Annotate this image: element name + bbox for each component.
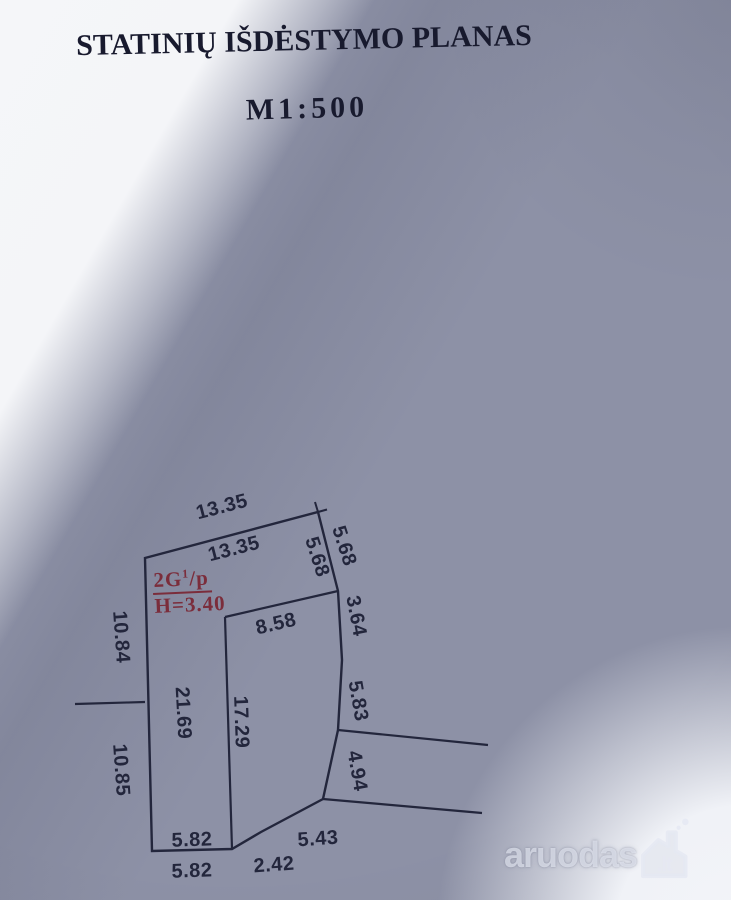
building-height: H=3.40 xyxy=(153,592,226,618)
dim-bottom-diagonal-short: 2.42 xyxy=(253,853,295,878)
dim-northeast-inner: 5.68 xyxy=(300,534,334,580)
dim-bottom-diagonal-long: 5.43 xyxy=(297,827,339,852)
dim-left-total: 21.69 xyxy=(171,686,196,740)
aruodas-watermark: aruodas .lt xyxy=(504,814,695,880)
watermark-brand-text: aruodas xyxy=(504,837,637,873)
dim-bottom-inner: 5.82 xyxy=(171,828,213,851)
boundary-extension-upper xyxy=(338,730,488,745)
plan-photo: STATINIŲ IŠDĖSTYMO PLANAS M1:500 13.35 1… xyxy=(0,0,731,900)
dim-left-upper: 10.84 xyxy=(108,610,134,664)
house-icon: .lt xyxy=(641,814,695,880)
corner-overshoot-top xyxy=(318,510,327,513)
dim-top-outer: 13.35 xyxy=(194,490,250,524)
watermark-tld: .lt xyxy=(657,854,673,876)
dim-top-inner: 13.35 xyxy=(206,532,262,566)
boundary-extension-lower xyxy=(323,799,482,813)
dim-left-lower: 10.85 xyxy=(108,743,134,797)
smoke-dot-large xyxy=(682,819,689,826)
dim-east-upper: 3.64 xyxy=(341,594,370,639)
smoke-dot-small xyxy=(677,826,681,830)
dim-building-left: 17.29 xyxy=(229,695,253,748)
dim-northeast-outer: 5.68 xyxy=(327,523,361,569)
building-designation: 2G1/p H=3.40 xyxy=(152,566,226,617)
dim-bottom-outer: 5.82 xyxy=(171,859,213,882)
dim-east-middle: 5.83 xyxy=(344,679,373,723)
corner-overshoot-side xyxy=(315,502,318,512)
boundary-tick-left xyxy=(75,702,145,704)
dim-building-top: 8.58 xyxy=(254,609,299,640)
site-plan-drawing: 13.35 13.35 5.68 5.68 3.64 8.58 10.84 21… xyxy=(0,0,731,900)
building-code: 2G1/p xyxy=(152,566,212,594)
dim-east-lower: 4.94 xyxy=(343,749,372,793)
